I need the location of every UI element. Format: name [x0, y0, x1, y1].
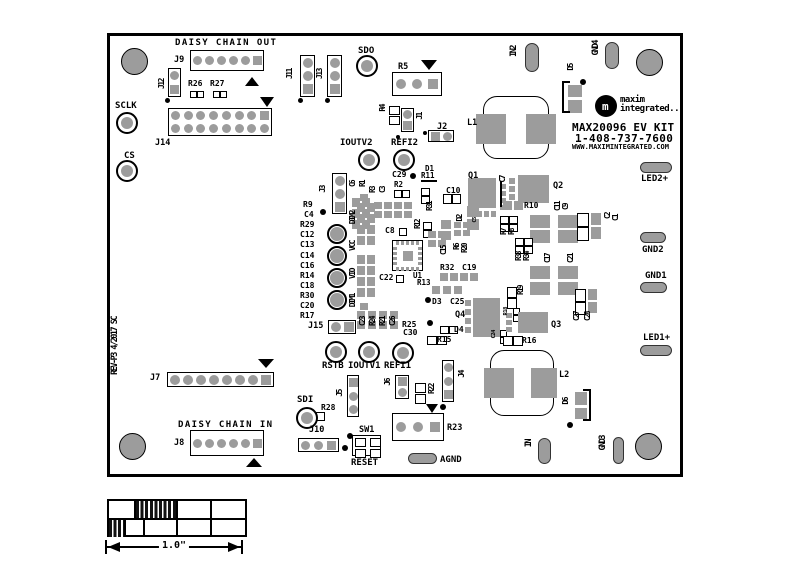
label-website: WWW.MAXIMINTEGRATED.COM	[572, 144, 669, 151]
smd-pad	[432, 286, 440, 294]
pin-round	[184, 111, 193, 120]
smd-pad	[374, 211, 382, 218]
smd-pad	[394, 211, 402, 218]
smd-pad	[418, 252, 422, 255]
smd-pad	[588, 289, 597, 300]
pin1-dot	[320, 209, 326, 215]
smd-pad	[438, 231, 446, 238]
pin-round	[303, 71, 313, 81]
label-d4: D4	[454, 326, 464, 334]
label-c12: C12	[300, 231, 314, 239]
testpoint-center	[301, 412, 313, 424]
testpoint-center	[330, 271, 344, 285]
smd-pad	[460, 273, 468, 281]
smd-pad	[394, 190, 402, 198]
label-r27: R27	[210, 80, 224, 88]
testpoint-center	[397, 347, 409, 359]
smd-pad	[418, 262, 422, 265]
smd-pad	[454, 222, 461, 228]
label-c26: C26	[389, 317, 397, 326]
pin-round	[209, 375, 219, 385]
header-j9	[190, 50, 264, 71]
silkscreen-line	[500, 181, 502, 207]
smd-pad	[402, 190, 410, 198]
corner-mounting-hole	[636, 49, 663, 76]
pin-round	[205, 56, 214, 65]
testpoint-ioutv1	[358, 341, 380, 363]
scale-cell	[176, 520, 210, 537]
pin-round	[335, 176, 345, 186]
smd-pad	[393, 252, 397, 255]
smd-pad	[500, 216, 509, 224]
smd-pad	[411, 241, 414, 245]
pin-1-square	[330, 84, 340, 94]
smd-pad	[443, 194, 452, 204]
header-j1	[401, 108, 414, 132]
smd-pad	[503, 336, 513, 346]
label-c21: C21	[567, 254, 575, 263]
pin-1-square	[253, 56, 262, 65]
smd-pad	[401, 241, 404, 245]
testpoint-rstb	[325, 341, 347, 363]
smd-pad	[418, 257, 422, 260]
label-agnd: AGND	[440, 456, 462, 465]
pin-round	[222, 111, 231, 120]
label-c1: C1	[612, 215, 620, 221]
scale-cell	[109, 501, 134, 518]
label-sw1: SW1	[359, 426, 374, 435]
label-c17: C17	[544, 254, 552, 263]
header-j11	[300, 55, 315, 97]
pin-round	[235, 375, 245, 385]
label-c14: C14	[300, 252, 314, 260]
smd-pad	[441, 220, 451, 229]
pad-gnd2	[640, 232, 666, 243]
u1-center-pad	[403, 251, 413, 261]
maxim-logo-glyph: m	[602, 101, 609, 112]
corner-mounting-hole	[121, 48, 148, 75]
label-refi2: REFI2	[391, 139, 418, 148]
cap-pad	[558, 215, 578, 228]
label-r20: R20	[461, 244, 469, 253]
pin-round	[396, 422, 406, 432]
smd-pad	[575, 289, 586, 302]
label-r31: R31	[426, 202, 434, 211]
label-c9: C9	[562, 204, 570, 210]
smd-pad	[465, 300, 471, 306]
testpoint-cs	[116, 160, 138, 182]
smd-pad	[463, 222, 470, 228]
label-vio: VIO	[349, 269, 357, 279]
label-c16: C16	[300, 262, 314, 270]
label-gnd1: GND1	[645, 272, 667, 281]
testpoint-center	[121, 117, 133, 129]
resistor-r23-footprint	[392, 413, 444, 441]
pin-1-square	[403, 121, 412, 130]
pin-round	[209, 111, 218, 120]
scale-cell-hatched	[109, 520, 124, 537]
smd-pad	[415, 394, 426, 404]
orientation-mark	[245, 77, 259, 86]
header-j5	[347, 375, 359, 417]
label-ioutv1: IOUTV1	[348, 362, 381, 371]
smd-pad	[506, 327, 512, 332]
smd-pad	[452, 194, 461, 204]
smd-pad	[389, 106, 400, 115]
smd-pad	[362, 209, 370, 218]
label-gnd2: GND2	[642, 246, 664, 255]
label-c13: C13	[300, 241, 314, 249]
pad-in2	[525, 43, 539, 72]
label-q4: Q4	[455, 311, 465, 320]
label-r34: R34	[523, 252, 531, 261]
pin-round	[398, 388, 407, 397]
pin-round	[196, 111, 205, 120]
smd-pad	[393, 257, 397, 260]
label-ioutv2: IOUTV2	[340, 139, 373, 148]
smd-pad	[367, 255, 375, 264]
cap-pad	[530, 282, 550, 295]
testpoint-sdo	[356, 55, 378, 77]
label-c24: C24	[492, 330, 498, 338]
smd-pad	[396, 241, 399, 245]
testpoint-center	[121, 165, 133, 177]
scale-bar-row	[109, 518, 245, 537]
pin1-dot	[342, 445, 348, 451]
header-j12	[168, 68, 181, 97]
smd-pad	[394, 202, 402, 209]
smd-pad	[374, 202, 382, 209]
smd-pad	[384, 211, 392, 218]
label-c28: C28	[584, 312, 592, 321]
label-r9: R9	[303, 201, 313, 209]
smd-pad	[389, 116, 400, 125]
smd-pad	[357, 266, 365, 275]
orientation-mark	[258, 359, 274, 368]
d5-pad	[568, 100, 582, 113]
label-r8: R8	[508, 229, 516, 235]
scale-cell	[210, 520, 245, 537]
pin-round	[396, 79, 406, 89]
smd-pad	[465, 309, 471, 315]
label-j8: J8	[174, 439, 184, 448]
label-c25: C25	[450, 298, 464, 306]
pin-round	[217, 439, 226, 448]
pin-round	[193, 439, 202, 448]
label-r15: R15	[437, 336, 451, 344]
smd-pad	[357, 255, 365, 264]
pin-1-square	[431, 132, 440, 141]
smd-pad	[384, 202, 392, 209]
label-r18: R18	[504, 307, 510, 315]
corner-mounting-hole	[119, 433, 146, 460]
scale-cell-hatched	[134, 501, 176, 518]
label-c7: C7	[499, 176, 507, 183]
pin-round	[314, 441, 323, 450]
smd-pad	[404, 211, 412, 218]
smd-pad	[423, 222, 432, 230]
smd-pad	[404, 202, 412, 209]
pin-round	[241, 439, 250, 448]
label-r1: R1	[359, 181, 367, 187]
pin-round	[184, 124, 193, 133]
label-r4: R4	[379, 105, 387, 112]
pin-round	[444, 377, 453, 386]
label-r21: R21	[379, 317, 387, 326]
pin1-dot	[325, 98, 330, 103]
label-rstb: RSTB	[322, 362, 344, 371]
smd-pad	[577, 213, 589, 227]
testpoint-center	[330, 293, 344, 307]
label-j1: J1	[416, 113, 424, 120]
label-dim1: DIM1	[349, 294, 357, 307]
label-j15: J15	[308, 322, 323, 331]
label-r5: R5	[398, 63, 408, 72]
pad-led2	[640, 162, 672, 173]
scale-arrow: 1.0"	[105, 540, 243, 554]
pin-round	[260, 124, 269, 133]
label-r28: R28	[321, 404, 335, 412]
smd-pad	[367, 288, 375, 297]
smd-pad	[352, 198, 360, 207]
label-j4: J4	[458, 371, 466, 378]
silkscreen-line	[562, 111, 570, 113]
smd-pad	[591, 213, 601, 225]
smd-pad	[506, 320, 512, 325]
smd-pad	[509, 186, 515, 192]
pin1-dot	[425, 297, 431, 303]
smd-pad	[454, 230, 461, 236]
smd-pad	[360, 303, 368, 310]
pin-round	[303, 58, 313, 68]
smd-pad	[467, 206, 479, 217]
pin-1-square	[398, 377, 407, 386]
corner-mounting-hole	[635, 433, 662, 460]
header-j13	[327, 55, 342, 97]
smd-pad	[357, 277, 365, 286]
silkscreen-line	[562, 82, 564, 113]
pin-round	[209, 124, 218, 133]
smd-pad	[213, 91, 220, 98]
orientation-mark	[260, 97, 274, 107]
label-r13: R13	[417, 279, 431, 287]
smd-pad	[355, 438, 366, 447]
pin1-dot	[410, 173, 416, 179]
label-c23: C23	[359, 317, 367, 326]
arrowhead-left-icon	[108, 542, 120, 552]
via-testpoint	[327, 246, 347, 266]
label-c3: C3	[379, 187, 387, 193]
pin-round	[443, 132, 452, 141]
header-j3	[332, 173, 347, 214]
label-led1: LED1+	[643, 334, 670, 343]
smd-pad	[463, 230, 470, 236]
smd-pad	[591, 227, 601, 239]
scale-cell	[124, 520, 143, 537]
pad-led1	[640, 345, 672, 356]
label-c10: C10	[446, 187, 460, 195]
label-j12: J12	[158, 79, 166, 89]
cap-pad	[530, 215, 550, 228]
label-j5: J5	[336, 390, 344, 397]
smd-pad	[418, 247, 422, 250]
label-in: IN	[525, 440, 534, 447]
l1-pad	[526, 114, 556, 144]
label-vcc: VCC	[349, 241, 357, 251]
pin-1-square	[260, 111, 269, 120]
pin-round	[412, 79, 422, 89]
label-c19: C19	[462, 264, 476, 272]
pin-1-square	[303, 84, 313, 94]
l2-pad	[484, 368, 514, 398]
pin-round	[444, 363, 453, 372]
smd-pad	[465, 318, 471, 324]
label-r22: R22	[428, 384, 436, 394]
label-dim2: DIM2	[349, 211, 357, 224]
label-c15: C15	[440, 246, 448, 255]
testpoint-refi2	[393, 149, 415, 171]
smd-pad	[421, 188, 430, 196]
label-sdi: SDI	[297, 396, 313, 405]
l2-pad	[531, 368, 557, 398]
pin-round	[229, 439, 238, 448]
label-refi1: REFI1	[384, 362, 411, 371]
smd-pad	[440, 326, 449, 334]
smd-pad	[396, 267, 399, 271]
label-r11: R11	[421, 172, 435, 180]
testpoint-center	[363, 346, 375, 358]
label-l1: L1	[467, 119, 477, 128]
label-j7: J7	[150, 374, 160, 383]
pin-round	[330, 58, 340, 68]
label-r19: R19	[517, 286, 525, 295]
testpoint-center	[363, 154, 375, 166]
label-r32: R32	[440, 264, 454, 272]
label-r26: R26	[188, 80, 202, 88]
pin-1-square	[349, 378, 358, 387]
smd-pad	[190, 91, 197, 98]
label-j14: J14	[155, 139, 170, 148]
label-d5: D5	[567, 64, 575, 71]
pin-round	[196, 124, 205, 133]
smd-pad	[370, 449, 381, 458]
pin-round	[183, 375, 193, 385]
label-gnd3: GND3	[599, 436, 608, 450]
arrowhead-right-icon	[228, 542, 240, 552]
smd-pad	[367, 277, 375, 286]
smd-pad	[357, 236, 365, 245]
header-j7	[167, 372, 274, 387]
smd-pad	[428, 231, 436, 238]
label-c5: C5	[473, 217, 479, 223]
label-sclk: SCLK	[115, 102, 137, 111]
pcb-board: DAISY CHAIN OUTJ9J12R26R27SCLKJ14CSJ11J1…	[107, 33, 683, 477]
silkscreen-line	[583, 389, 591, 391]
smd-pad	[197, 91, 204, 98]
scale-label: 1.0"	[159, 540, 189, 551]
smd-pad	[401, 267, 404, 271]
smd-pad	[427, 336, 437, 345]
smd-pad	[220, 91, 227, 98]
smd-pad	[450, 273, 458, 281]
smd-pad	[416, 241, 419, 245]
cap-pad	[530, 230, 550, 243]
smd-pad	[406, 267, 409, 271]
smd-pad	[367, 266, 375, 275]
testpoint-center	[330, 346, 342, 358]
pin1-dot	[165, 98, 170, 103]
label-c4: C4	[304, 211, 314, 219]
pin-1-square	[430, 422, 440, 432]
label-l2: L2	[559, 371, 569, 380]
scale-bar-row	[109, 501, 245, 518]
header-j14	[168, 108, 272, 136]
smd-pad	[370, 438, 381, 447]
label-rev: REV-P3 4/2017 SC	[111, 317, 120, 375]
label-c20: C20	[300, 302, 314, 310]
pad-agnd	[408, 453, 437, 464]
smd-pad	[515, 238, 524, 246]
scale-tick-right	[241, 540, 243, 554]
label-daisy-chain-in: DAISY CHAIN IN	[178, 421, 273, 430]
smd-pad	[491, 211, 496, 217]
pin-round	[247, 124, 256, 133]
cap-pad	[558, 266, 578, 279]
label-j3: J3	[319, 186, 327, 193]
label-led2: LED2+	[641, 175, 668, 184]
orientation-mark	[246, 458, 262, 467]
smd-pad	[362, 220, 370, 229]
smd-pad	[443, 286, 451, 294]
pin-round	[193, 56, 202, 65]
smd-pad	[399, 228, 407, 236]
label-daisy-chain-out: DAISY CHAIN OUT	[175, 39, 277, 48]
smd-pad	[503, 201, 512, 210]
label-in2: IN2	[510, 46, 519, 57]
q1-body	[468, 178, 496, 208]
pin-round	[217, 56, 226, 65]
pin-round	[196, 375, 206, 385]
smd-pad	[509, 178, 515, 184]
pin-round	[205, 439, 214, 448]
orientation-mark	[421, 60, 437, 70]
label-sdo: SDO	[358, 47, 374, 56]
label-r17: R17	[300, 312, 314, 320]
smd-pad	[355, 449, 366, 458]
pin-1-square	[170, 85, 179, 94]
pin-round	[247, 111, 256, 120]
pin-round	[241, 56, 250, 65]
scale-cell	[143, 520, 176, 537]
pin1-dot	[423, 131, 427, 135]
pin-round	[235, 124, 244, 133]
smd-pad	[465, 327, 471, 333]
smd-pad	[524, 238, 533, 246]
d5-pad	[568, 85, 582, 97]
pin-round	[222, 375, 232, 385]
header-j4	[442, 360, 454, 402]
testpoint-center	[330, 227, 344, 241]
pin-1-square	[335, 202, 345, 212]
pin-round	[413, 422, 423, 432]
label-c8: C8	[385, 227, 395, 235]
pin1-dot	[440, 404, 446, 410]
smd-pad	[454, 286, 462, 294]
label-cs: CS	[124, 152, 135, 161]
smd-pad	[367, 236, 375, 245]
header-j8	[190, 430, 264, 456]
smd-pad	[440, 273, 448, 281]
